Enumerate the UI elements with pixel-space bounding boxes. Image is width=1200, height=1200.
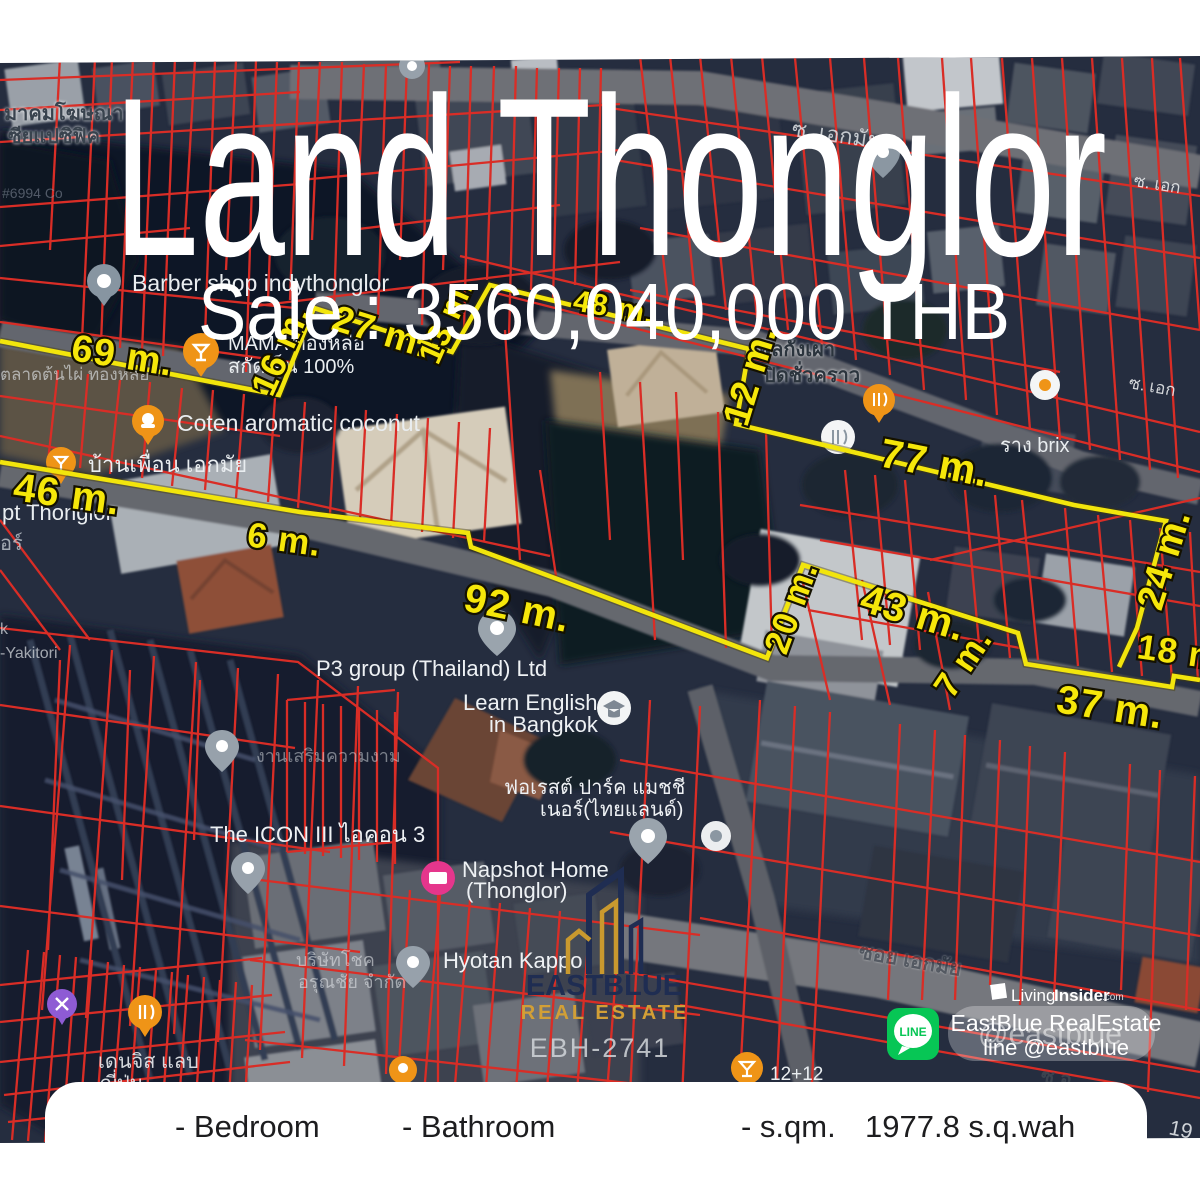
svg-text:P3 group (Thailand) Ltd: P3 group (Thailand) Ltd — [316, 656, 547, 681]
svg-text:EBH-2741: EBH-2741 — [530, 1033, 671, 1063]
svg-text:มาคมโฆษณา: มาคมโฆษณา — [4, 101, 124, 125]
svg-text:อร์: อร์ — [0, 532, 23, 555]
svg-text:Sale : 3560,040,000 THB: Sale : 3560,040,000 THB — [198, 267, 1010, 356]
svg-text:ปิดชั่วคราว: ปิดชั่วคราว — [762, 360, 860, 387]
svg-text:.com: .com — [1102, 992, 1124, 1003]
svg-text:- Bedroom: - Bedroom — [175, 1109, 320, 1144]
svg-text:ซียแปซิฟิค: ซียแปซิฟิค — [8, 125, 100, 148]
svg-text:LINE: LINE — [899, 1025, 926, 1039]
svg-text:#6994 Co: #6994 Co — [2, 185, 63, 201]
svg-text:(Thonglor): (Thonglor) — [466, 878, 567, 903]
svg-text:REAL ESTATE: REAL ESTATE — [521, 1002, 690, 1024]
svg-text:งานเสริมความงาม: งานเสริมความงาม — [256, 746, 401, 766]
svg-text:Living: Living — [1011, 986, 1055, 1005]
svg-text:บ้านเพื่อน เอกมัย: บ้านเพื่อน เอกมัย — [88, 449, 247, 477]
svg-text:k: k — [0, 621, 9, 638]
svg-text:1977.8 s.q.wah: 1977.8 s.q.wah — [865, 1109, 1075, 1144]
svg-text:line @eastblue: line @eastblue — [983, 1035, 1129, 1060]
svg-text:ฟอเรสต์ ปาร์ค แมชชี: ฟอเรสต์ ปาร์ค แมชชี — [504, 776, 685, 799]
svg-text:Land Thonglor: Land Thonglor — [113, 50, 1107, 303]
svg-text:in Bangkok: in Bangkok — [489, 712, 599, 737]
svg-text:เดนจิส แลบ: เดนจิส แลบ — [98, 1051, 199, 1073]
svg-text:- Bathroom: - Bathroom — [402, 1109, 555, 1144]
svg-text:-Yakitori: -Yakitori — [0, 645, 58, 662]
svg-text:The ICON III ไอคอน 3: The ICON III ไอคอน 3 — [210, 822, 425, 847]
svg-text:- s.qm.: - s.qm. — [741, 1109, 836, 1144]
svg-text:เนอร์(ไทยแลนด์): เนอร์(ไทยแลนด์) — [540, 798, 683, 821]
svg-text:ราง brix: ราง brix — [1000, 435, 1070, 457]
svg-text:อรุณชัย จำกัด: อรุณชัย จำกัด — [298, 972, 406, 993]
svg-text:12+12: 12+12 — [770, 1064, 823, 1085]
svg-text:EastBlue RealEstate: EastBlue RealEstate — [951, 1010, 1162, 1036]
svg-text:บริษัทโชค: บริษัทโชค — [296, 949, 375, 970]
svg-text:Coten aromatic coconut: Coten aromatic coconut — [177, 410, 421, 436]
svg-text:EASTBLUE: EASTBLUE — [526, 970, 682, 1002]
